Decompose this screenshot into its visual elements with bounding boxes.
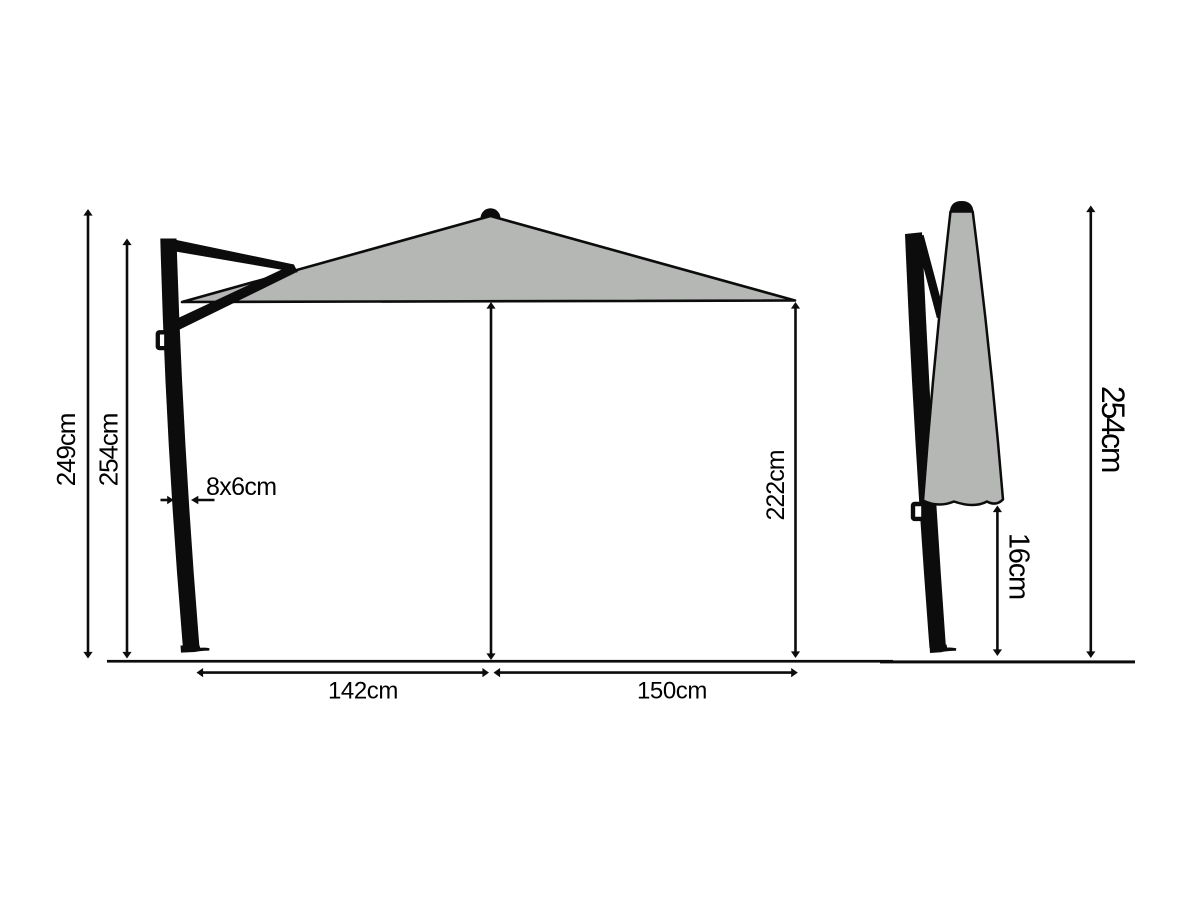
svg-text:249cm: 249cm (51, 414, 81, 487)
svg-text:254cm: 254cm (94, 414, 124, 487)
svg-text:8x6cm: 8x6cm (206, 473, 276, 501)
svg-text:142cm: 142cm (328, 677, 398, 704)
svg-text:222cm: 222cm (762, 450, 790, 520)
svg-text:150cm: 150cm (637, 677, 707, 704)
svg-text:16cm: 16cm (1003, 533, 1035, 599)
svg-text:254cm: 254cm (1095, 386, 1131, 472)
